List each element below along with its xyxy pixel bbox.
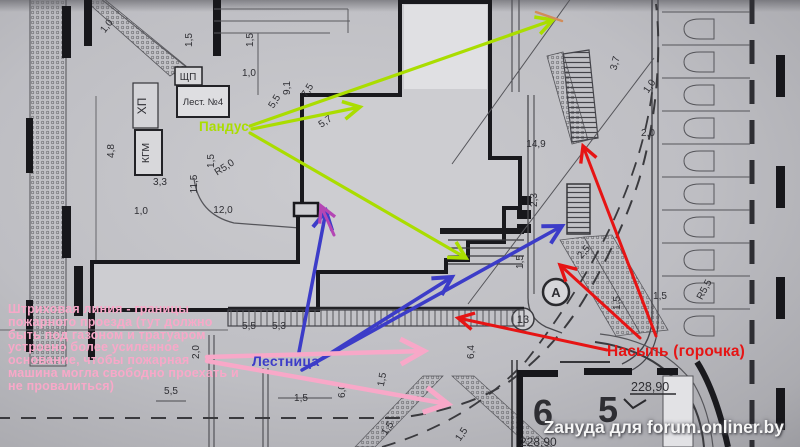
- car-glyph: [684, 52, 714, 72]
- car-glyph: [684, 184, 714, 204]
- car-glyph: [684, 118, 714, 138]
- dim-label: 12,0: [213, 205, 233, 216]
- annotation-label-stairs: Лестница: [252, 353, 319, 369]
- annotation-label-mound: Насыпь (горочка): [607, 343, 745, 361]
- dim-label: 1,5: [294, 393, 308, 404]
- dim-label: 1,5: [184, 33, 195, 47]
- dim-label: 3,3: [153, 177, 167, 188]
- stair4-label: Лест. №4: [183, 97, 223, 108]
- dim-label: 1,5: [515, 255, 526, 269]
- dim-label: 1,5: [453, 425, 470, 443]
- dim-label: 5,3: [272, 321, 286, 332]
- shp-label: ЩП: [180, 72, 197, 83]
- building-entrance-notch: [294, 203, 318, 216]
- dim-label: 1,5: [653, 291, 667, 302]
- watermark: Zануда для forum.onliner.by: [544, 417, 784, 438]
- hatched-path-diagonal: [78, 0, 186, 76]
- point-13-label: 13: [517, 314, 529, 326]
- dim-label: 2,3: [529, 193, 540, 207]
- stairs-hatch: [567, 184, 590, 234]
- dim-label: 1,5: [376, 371, 389, 387]
- dim-label: 5,5: [242, 321, 256, 332]
- dim-label: 4,8: [106, 144, 117, 158]
- car-glyph: [684, 316, 714, 336]
- dim-label: 1,0: [242, 68, 256, 79]
- dim-label: 14,9: [526, 139, 546, 150]
- elevation-check-mark: [624, 399, 646, 408]
- annotation-note-fire-lane: Штриховая линия - границыпожарного проез…: [8, 303, 239, 393]
- car-glyph: [684, 250, 714, 270]
- kgm-label: КГМ: [140, 143, 152, 163]
- bottom-hatch-1: [355, 376, 443, 447]
- radius-curve: [194, 178, 300, 228]
- hp-label: ХП: [135, 98, 149, 115]
- car-glyph: [684, 19, 714, 39]
- building-steps-edge: [440, 228, 524, 234]
- dim-label: 11,5: [189, 174, 200, 193]
- annotation-label-ramp: Пандус: [199, 119, 249, 134]
- note-line: машина могла свободно проехать и: [8, 367, 239, 380]
- note-line: не провалиться): [8, 380, 239, 393]
- car-glyph: [684, 85, 714, 105]
- site-plan-photo: ЩП Лест. №4 ХП КГМ А 13 6 5 228,90 228,9…: [0, 0, 800, 447]
- dim-label: 9,1: [282, 81, 293, 95]
- note-line: Штриховая линия - границы: [8, 303, 239, 316]
- car-glyph: [684, 217, 714, 237]
- dim-label: R5,5: [695, 278, 715, 302]
- elevation-5: 228,90: [631, 380, 669, 394]
- dim-label: 2,0: [641, 128, 655, 139]
- dim-label: 6,4: [466, 345, 477, 359]
- note-line: пожарного проезда (тут должно: [8, 316, 239, 329]
- dim-label: 1,5: [206, 154, 217, 168]
- dim-label: 1,5: [245, 33, 256, 47]
- dim-label: 1,5: [612, 296, 623, 310]
- dim-label: 1,0: [134, 206, 148, 217]
- axis-a-label: А: [551, 285, 561, 300]
- dim-label: 3,7: [608, 55, 622, 72]
- dim-label: 5,5: [267, 92, 284, 110]
- car-glyph: [684, 151, 714, 171]
